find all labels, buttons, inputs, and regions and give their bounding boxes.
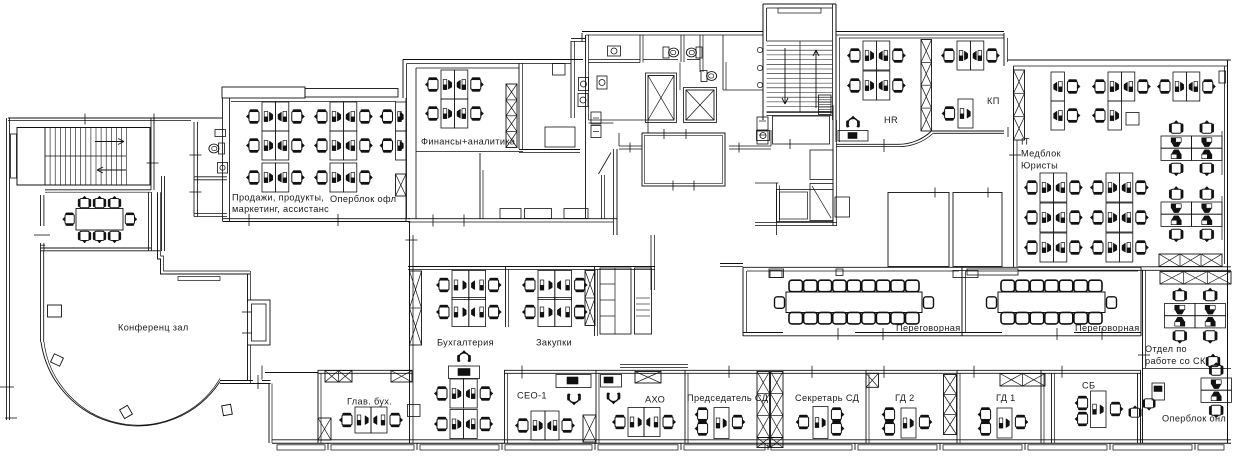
svg-text:АХО: АХО bbox=[645, 395, 665, 405]
svg-text:Отдел по: Отдел по bbox=[1145, 344, 1187, 354]
svg-text:работе со СК: работе со СК bbox=[1145, 356, 1206, 366]
svg-text:ГД 1: ГД 1 bbox=[996, 393, 1016, 403]
svg-text:КП: КП bbox=[987, 96, 1000, 106]
svg-text:маркетинг, ассистанс: маркетинг, ассистанс bbox=[232, 204, 329, 214]
svg-text:Продажи, продукты,: Продажи, продукты, bbox=[232, 193, 324, 203]
svg-text:Финансы+аналитика: Финансы+аналитика bbox=[421, 137, 516, 147]
svg-text:Конференц зал: Конференц зал bbox=[118, 323, 189, 333]
svg-text:Председатель СД: Председатель СД bbox=[687, 393, 769, 403]
svg-text:ГД 2: ГД 2 bbox=[895, 393, 915, 403]
svg-text:Оперблок онл: Оперблок онл bbox=[1162, 414, 1226, 424]
svg-text:Переговорная: Переговорная bbox=[896, 323, 961, 333]
svg-text:СБ: СБ bbox=[1082, 381, 1095, 391]
svg-text:Бухгалтерия: Бухгалтерия bbox=[437, 338, 494, 348]
svg-text:Закупки: Закупки bbox=[536, 338, 572, 348]
svg-text:СЕО-1: СЕО-1 bbox=[517, 391, 547, 401]
svg-text:Секретарь СД: Секретарь СД bbox=[795, 393, 860, 403]
svg-text:HR: HR bbox=[884, 115, 898, 125]
svg-text:Глав. бух.: Глав. бух. bbox=[347, 397, 392, 407]
svg-text:Медблок: Медблок bbox=[1021, 149, 1062, 159]
svg-text:Оперблок офл: Оперблок офл bbox=[330, 194, 396, 204]
svg-text:Юристы: Юристы bbox=[1021, 161, 1058, 171]
svg-text:Переговорная: Переговорная bbox=[1075, 323, 1140, 333]
svg-text:IT: IT bbox=[1021, 137, 1030, 147]
